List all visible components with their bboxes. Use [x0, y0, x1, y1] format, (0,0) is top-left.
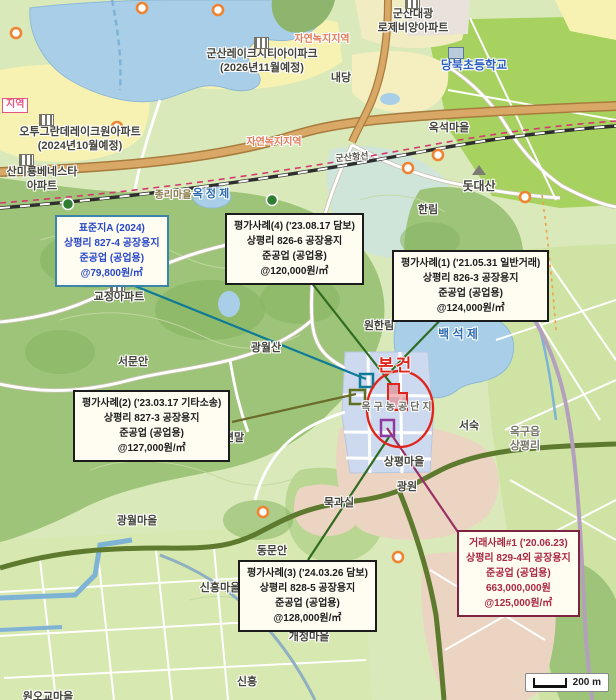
sinheung-label: 신흥: [237, 676, 257, 690]
sinheung-village-label: 신흥마을: [200, 582, 240, 596]
wonhallim-label: 원한림: [364, 320, 394, 334]
mountain-icon: [472, 165, 486, 175]
appraisal-case-4-line-1: 평가사례(4) ('23.08.17 담보): [234, 219, 355, 234]
scale-bar-label: 200 m: [573, 677, 601, 688]
appraisal-case-3-line-4: @128,000원/㎡: [247, 611, 368, 626]
appraisal-case-2-line-2: 상평리 827-3 공장용지: [82, 411, 221, 426]
okgu-industrial-complex-label: 옥구농공단지: [361, 402, 434, 415]
appraisal-case-3-callout[interactable]: 평가사례(3) ('24.03.26 담보)상평리 828-5 공장용지준공업 …: [238, 560, 377, 632]
zone-natural-green-top-label: 자연녹지지역: [294, 34, 349, 47]
school-icon: [448, 47, 464, 59]
scale-bar: 200 m: [525, 673, 609, 692]
standard-site-a-line-2: 상평리 827-4 공장용지: [64, 236, 160, 251]
zone-label-cut-label: 지역: [2, 98, 28, 113]
standard-site-a-line-1: 표준지A (2024): [64, 221, 160, 236]
appraisal-case-3-line-1: 평가사례(3) ('24.03.26 담보): [247, 566, 368, 581]
appraisal-case-1-line-1: 평가사례(1) ('21.05.31 일반거래): [401, 256, 540, 271]
seosuk-label: 서숙: [459, 420, 479, 434]
okgu-eup-sangpyeong-ri-label: 옥구읍 상평리: [510, 426, 540, 454]
subject-label: 본건: [378, 351, 413, 376]
mukgwasil-label: 묵과실: [324, 497, 354, 511]
appraisal-case-3-line-2: 상평리 828-5 공장용지: [247, 581, 368, 596]
dongmunan-label: 동문안: [257, 545, 287, 559]
standard-site-a-line-4: @79,800원/㎡: [64, 266, 160, 281]
appraisal-case-4-line-4: @120,000원/㎡: [234, 264, 355, 279]
apt-benesta-label: 산미룡베네스타 아파트: [7, 166, 78, 194]
apt-lakecity-label: 군산레이크시티아이파크 (2026년11월예정): [206, 48, 317, 76]
sale-case-1-line-5: @125,000원/㎡: [466, 596, 571, 611]
sale-case-1-line-3: 준공업 (공업용): [466, 566, 571, 581]
appraisal-case-2-callout[interactable]: 평가사례(2) ('23.03.17 기타소송)상평리 827-3 공장용지준공…: [73, 390, 230, 462]
appraisal-case-1-line-4: @124,000원/㎡: [401, 301, 540, 316]
annotation-overlay: 군산대광 로제비앙아파트군산레이크시티아이파크 (2026년11월예정)당북초등…: [0, 0, 616, 700]
gyojeong-apt-label: 교정아파트: [94, 291, 145, 305]
seomunan-label: 서문안: [118, 356, 148, 370]
building-icon: [405, 0, 420, 9]
hallim-label: 한림: [418, 204, 438, 218]
appraisal-case-1-callout[interactable]: 평가사례(1) ('21.05.31 일반거래)상평리 826-3 공장용지준공…: [392, 250, 549, 322]
appraisal-case-4-line-2: 상평리 826-6 공장용지: [234, 234, 355, 249]
sale-case-1-line-4: 663,000,000원: [466, 581, 571, 596]
gwangwolsan-label: 광월산: [251, 342, 281, 356]
apt-otwo-grande-label: 오투그란데레이크원아파트 (2024년10월예정): [19, 126, 140, 154]
scale-bar-rule: [533, 678, 567, 688]
building-icon: [19, 154, 34, 166]
okjeongje-pond-label: 옥 정 제: [193, 188, 229, 202]
appraisal-case-3-line-3: 준공업 (공업용): [247, 596, 368, 611]
appraisal-case-2-line-3: 준공업 (공업용): [82, 426, 221, 441]
gwangwon-label: 광원: [397, 481, 417, 495]
zone-natural-green-mid-label: 자연녹지지역: [246, 137, 301, 150]
standard-site-a-callout[interactable]: 표준지A (2024)상평리 827-4 공장용지준공업 (공업용)@79,80…: [55, 215, 169, 287]
building-icon: [39, 114, 54, 126]
sale-case-1-line-2: 상평리 829-4외 공장용지: [466, 551, 571, 566]
okseok-village-label: 옥석마을: [429, 122, 469, 136]
dotdaesan-mountain-label: 돗대산: [462, 179, 495, 194]
building-icon: [254, 37, 269, 49]
appraisal-case-1-line-2: 상평리 826-3 공장용지: [401, 271, 540, 286]
appraisal-case-2-line-1: 평가사례(2) ('23.03.17 기타소송): [82, 396, 221, 411]
baekseokje-lake-label: 백 석 제: [438, 327, 478, 342]
appraisal-case-4-line-3: 준공업 (공업용): [234, 249, 355, 264]
gaejeong-village-label: 개정마을: [289, 631, 329, 645]
map-viewport[interactable]: 군산대광 로제비앙아파트군산레이크시티아이파크 (2026년11월예정)당북초등…: [0, 0, 616, 700]
jongri-village-label: 종리마을: [155, 190, 192, 203]
appraisal-case-1-line-3: 준공업 (공업용): [401, 286, 540, 301]
standard-site-a-line-3: 준공업 (공업용): [64, 251, 160, 266]
sale-case-1-callout[interactable]: 거래사례#1 ('20.06.23)상평리 829-4외 공장용지준공업 (공업…: [457, 530, 580, 617]
appraisal-case-4-callout[interactable]: 평가사례(4) ('23.08.17 담보)상평리 826-6 공장용지준공업 …: [225, 213, 364, 285]
appraisal-case-2-line-4: @127,000원/㎡: [82, 441, 221, 456]
naedang-label: 내당: [331, 72, 351, 86]
gwangwol-village-label: 광월마을: [117, 515, 157, 529]
school-dangbuk-label: 당북초등학교: [441, 58, 507, 73]
wonogyo-village-label: 원오교마을: [23, 691, 74, 700]
sangpyeong-village-label: 상평마을: [384, 456, 424, 470]
apt-gunsan-daegwang-label: 군산대광 로제비앙아파트: [378, 8, 449, 36]
railway-name-label: 군산항선: [335, 151, 369, 165]
sale-case-1-line-1: 거래사례#1 ('20.06.23): [466, 536, 571, 551]
